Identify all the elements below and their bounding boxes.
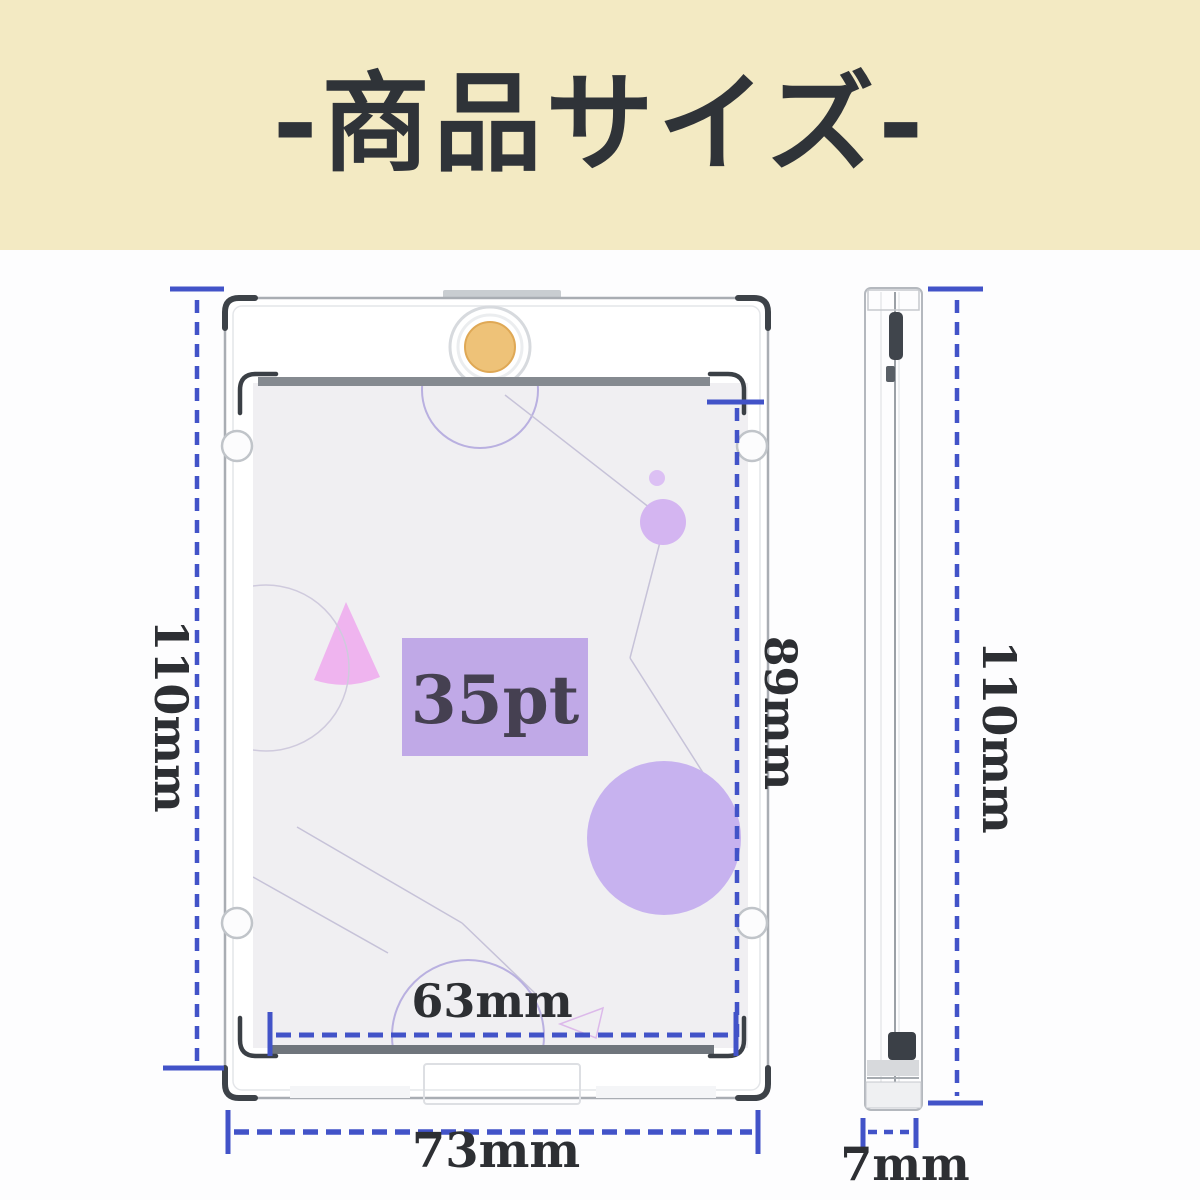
side-profile bbox=[865, 288, 922, 1110]
dim-outer-height-label: 110mm bbox=[144, 619, 198, 812]
size-diagram: 35pt bbox=[0, 250, 1200, 1200]
side-base-gray bbox=[867, 1060, 919, 1076]
card-slot-bottom-bar bbox=[270, 1045, 714, 1054]
bottom-foot-left bbox=[290, 1086, 410, 1098]
dim-inner-width-label: 63mm bbox=[411, 974, 572, 1028]
page-title: -商品サイズ- bbox=[273, 71, 927, 179]
side-magnet-bottom bbox=[888, 1032, 916, 1060]
dim-outer-width-label: 73mm bbox=[412, 1123, 580, 1179]
side-base bbox=[866, 1082, 921, 1108]
artwork-dot-small bbox=[649, 470, 665, 486]
header-band: -商品サイズ- bbox=[0, 0, 1200, 250]
side-magnet-top bbox=[889, 312, 903, 360]
dim-inner-height-label: 89mm bbox=[754, 636, 805, 790]
side-magnet-dot bbox=[886, 366, 895, 382]
dim-side-height-label: 110mm bbox=[972, 640, 1026, 833]
card-slot-top-bar bbox=[258, 377, 710, 386]
magnet-button-icon bbox=[450, 307, 530, 387]
dim-thickness-label: 7mm bbox=[840, 1137, 969, 1191]
product-size-infographic: -商品サイズ- bbox=[0, 0, 1200, 1200]
bottom-foot-right bbox=[596, 1086, 716, 1098]
card-holder-side-view bbox=[865, 288, 922, 1110]
artwork-circle-big bbox=[587, 761, 741, 915]
pt-badge-label: 35pt bbox=[411, 661, 580, 739]
artwork-circle-small bbox=[640, 499, 686, 545]
